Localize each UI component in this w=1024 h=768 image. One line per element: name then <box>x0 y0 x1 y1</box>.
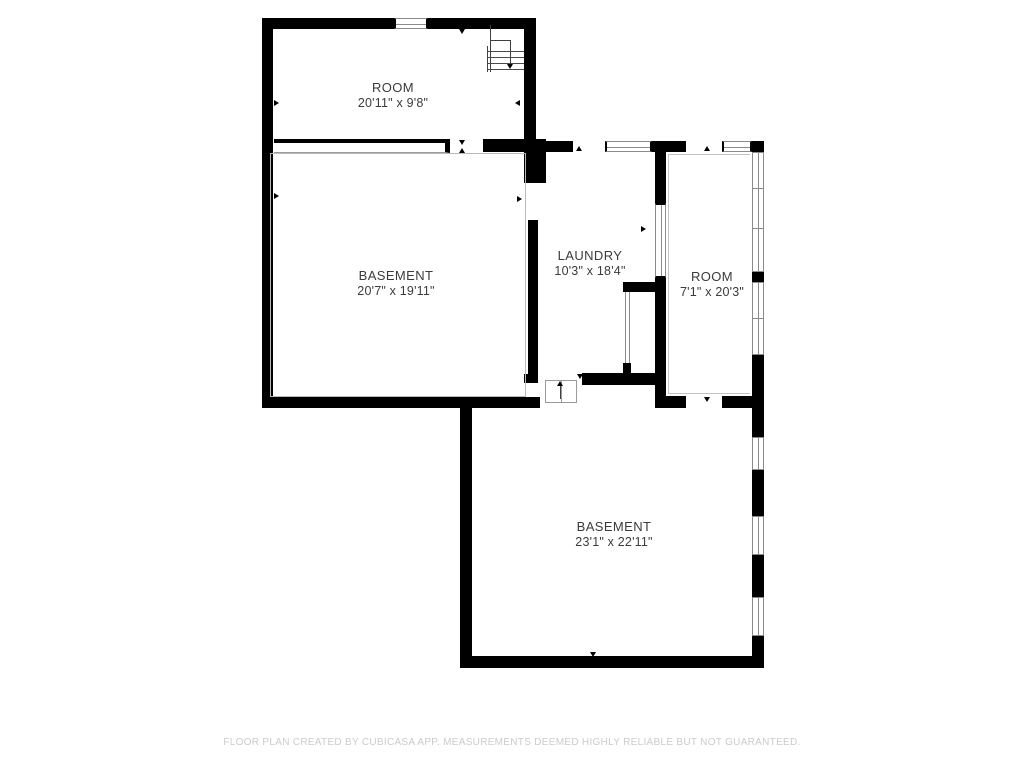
basement-upper-label: BASEMENT 20'7" x 19'11" <box>357 268 434 298</box>
window-icon <box>394 18 428 29</box>
window-icon <box>655 203 666 278</box>
opening-marker <box>704 146 710 151</box>
disclaimer-text: FLOOR PLAN CREATED BY CUBICASA APP. MEAS… <box>223 737 800 748</box>
room-name: ROOM <box>358 80 428 95</box>
door-marker <box>641 226 646 232</box>
wall <box>752 141 764 152</box>
wall <box>546 141 573 152</box>
room-name: ROOM <box>680 269 744 284</box>
steps-arrow <box>560 386 561 399</box>
room-dimensions: 20'11" x 9'8" <box>358 96 428 110</box>
wall <box>752 272 764 282</box>
room-dimensions: 7'1" x 20'3" <box>680 285 744 299</box>
wall <box>524 18 536 139</box>
wall <box>722 396 764 408</box>
wall <box>483 139 524 152</box>
wall <box>528 220 538 374</box>
room-dimensions: 23'1" x 22'11" <box>575 535 652 549</box>
window-icon <box>752 188 764 229</box>
closet-wall <box>623 363 631 373</box>
window-icon <box>752 516 764 555</box>
window-icon <box>752 152 764 189</box>
window-icon <box>722 141 752 152</box>
wall <box>262 397 540 408</box>
room-dimensions: 10'3" x 18'4" <box>554 264 625 278</box>
window-icon <box>752 318 764 355</box>
room-dimensions: 20'7" x 19'11" <box>357 284 434 298</box>
wall-opening <box>274 139 450 153</box>
room-name: BASEMENT <box>575 519 652 534</box>
window-icon <box>752 437 764 470</box>
door-marker <box>528 227 533 233</box>
room-right-label: ROOM 7'1" x 20'3" <box>680 269 744 299</box>
window-icon <box>752 228 764 272</box>
opening-marker <box>704 397 710 402</box>
laundry-label: LAUNDRY 10'3" x 18'4" <box>554 248 625 278</box>
wall <box>524 139 546 183</box>
closet-wall <box>623 282 666 292</box>
room-name: LAUNDRY <box>554 248 625 263</box>
wall <box>752 408 764 437</box>
room-name: BASEMENT <box>357 268 434 283</box>
wall <box>524 374 538 383</box>
door-marker <box>517 196 522 202</box>
wall-marker <box>590 652 596 657</box>
wall <box>460 396 472 668</box>
wall <box>582 373 666 385</box>
wall <box>752 636 764 668</box>
basement-lower-label: BASEMENT 23'1" x 22'11" <box>575 519 652 549</box>
window-icon <box>752 597 764 636</box>
opening-marker <box>459 148 465 153</box>
wall-marker <box>515 100 520 106</box>
closet-opening <box>625 292 630 363</box>
steps-arrow-head <box>557 381 563 386</box>
wall <box>460 656 764 668</box>
floor-plan: ROOM 20'11" x 9'8" BASEMENT 20'7" x 19'1… <box>0 0 1024 768</box>
opening-marker <box>576 146 582 151</box>
room-top-label: ROOM 20'11" x 9'8" <box>358 80 428 110</box>
wall-marker <box>274 193 279 199</box>
wall <box>752 555 764 597</box>
opening-marker <box>577 374 583 379</box>
window-icon <box>752 282 764 319</box>
wall <box>655 396 686 408</box>
window-icon <box>605 141 652 152</box>
opening-marker <box>459 140 465 145</box>
wall-marker <box>274 100 279 106</box>
wall <box>752 470 764 516</box>
opening-marker <box>459 29 465 34</box>
